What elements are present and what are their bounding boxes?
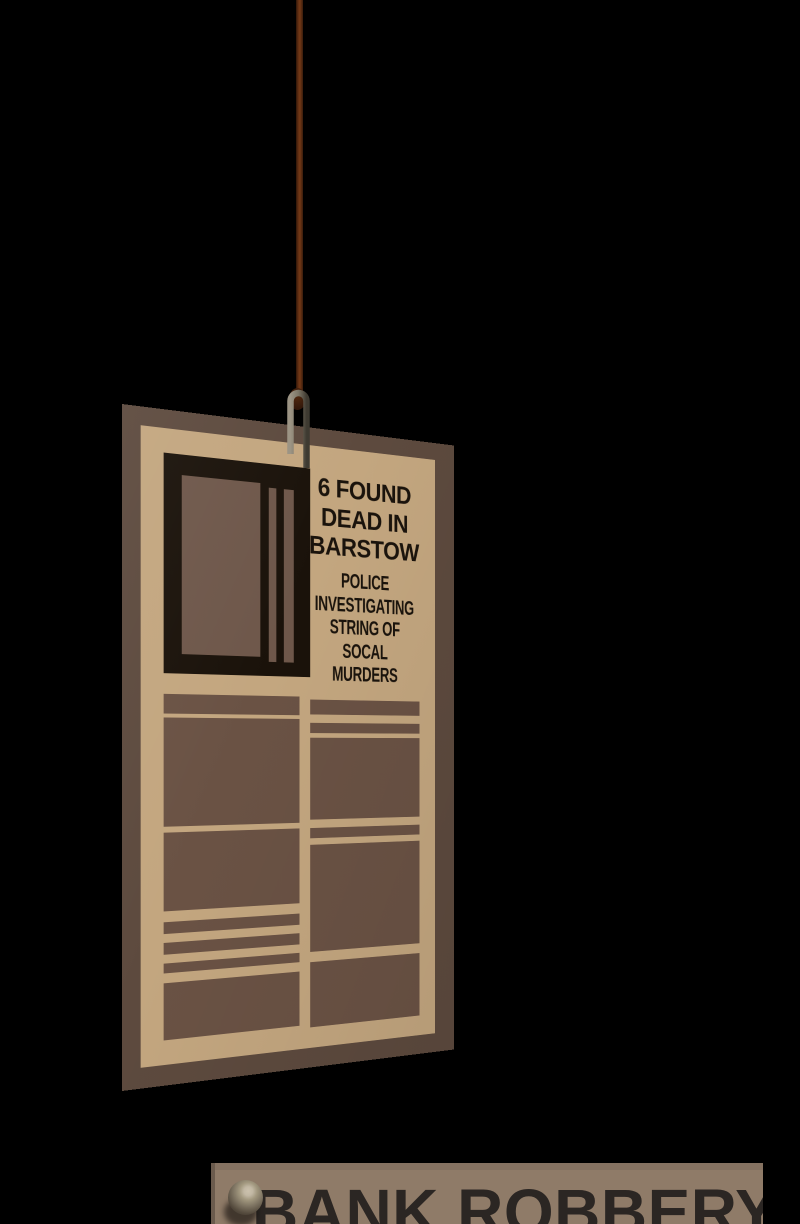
photo-image-area — [182, 475, 261, 657]
clipping-top-edge — [211, 1163, 763, 1170]
article-text-line — [164, 914, 300, 935]
article-text-line — [310, 723, 419, 734]
evidence-board-scene: 6 FOUND DEAD IN BARSTOW POLICE INVESTIGA… — [0, 0, 800, 1224]
push-pin-icon — [228, 1180, 263, 1215]
newspaper-subheadline: POLICE INVESTIGATING STRING OF SOCAL MUR… — [303, 567, 425, 688]
front-page-photo — [164, 453, 311, 678]
clipping-headline: BANK ROBBERY — [252, 1180, 763, 1224]
newspaper-murders-clipping[interactable]: 6 FOUND DEAD IN BARSTOW POLICE INVESTIGA… — [122, 404, 454, 1091]
article-block — [164, 828, 300, 911]
newspaper-page: 6 FOUND DEAD IN BARSTOW POLICE INVESTIGA… — [122, 404, 454, 1091]
article-text-line — [310, 825, 419, 839]
article-block — [310, 700, 419, 716]
article-block — [310, 841, 419, 952]
photo-bar — [269, 488, 277, 662]
article-text-line — [164, 953, 300, 974]
article-block — [164, 717, 300, 826]
photo-bar — [284, 489, 294, 662]
article-column-right — [310, 700, 419, 1028]
article-block — [310, 953, 419, 1027]
subheadline-line: MURDERS — [303, 661, 425, 688]
article-block — [310, 738, 419, 820]
article-block — [164, 694, 300, 715]
hanging-string — [296, 0, 303, 402]
clipping-left-edge — [211, 1163, 215, 1224]
article-text-line — [164, 933, 300, 955]
newspaper-bank-robbery-clipping[interactable]: BANK ROBBERY — [211, 1163, 763, 1224]
newspaper-headline: 6 FOUND DEAD IN BARSTOW — [303, 471, 425, 568]
article-column-left — [164, 694, 300, 1041]
hook-icon — [283, 386, 314, 472]
